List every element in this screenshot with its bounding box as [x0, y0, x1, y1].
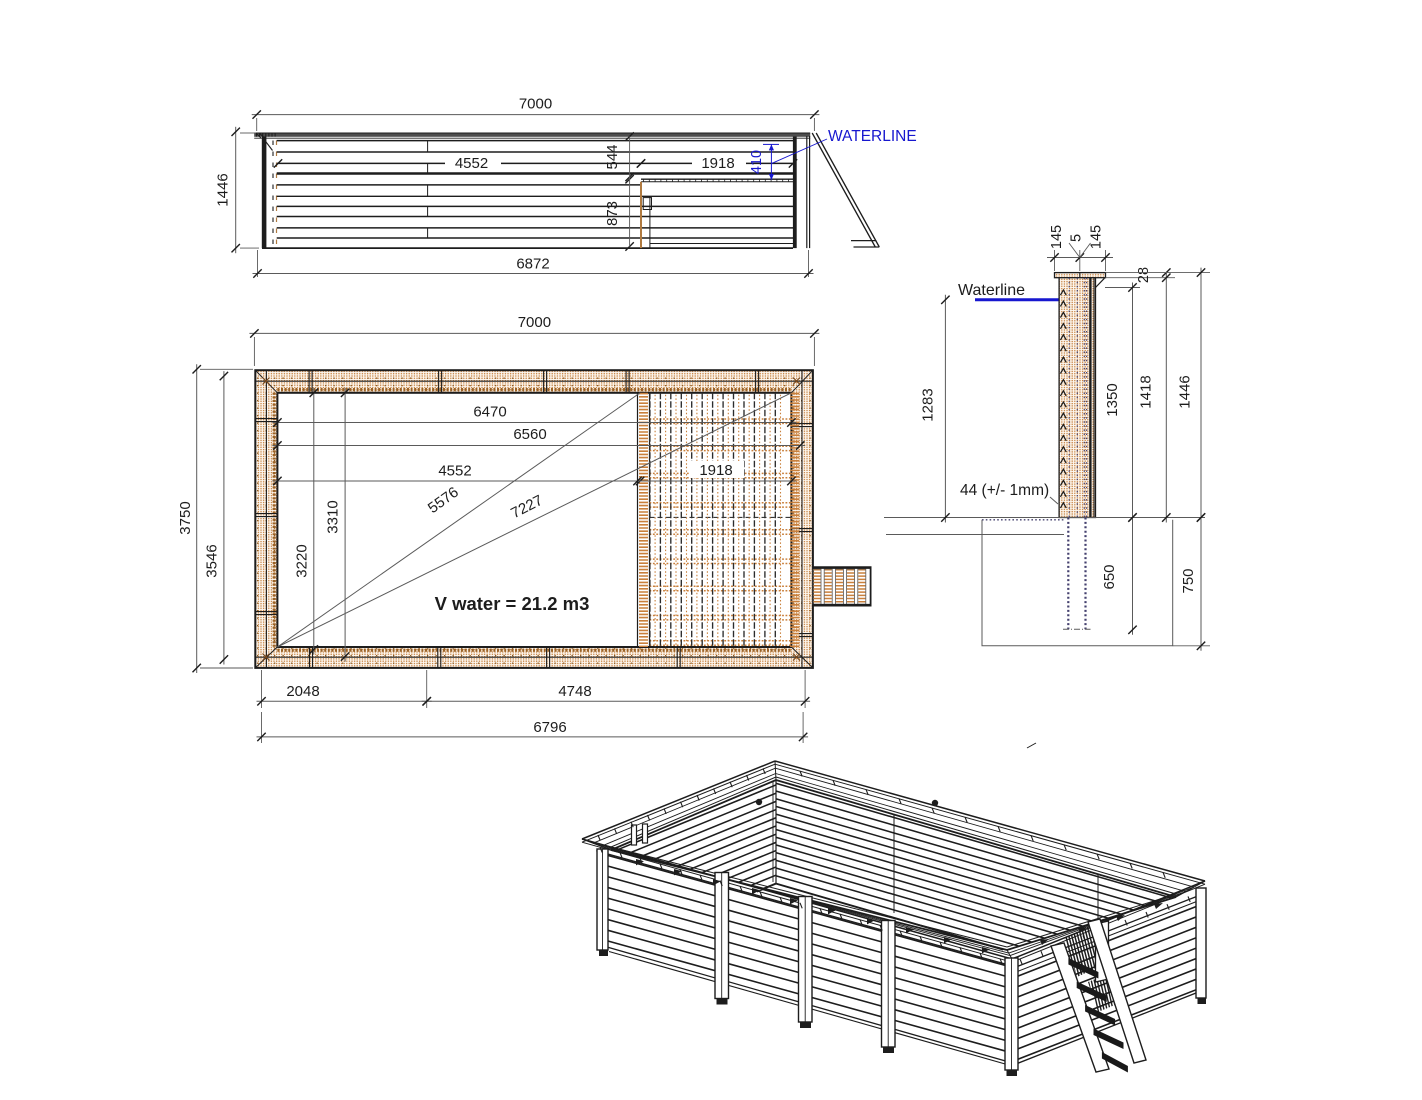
- svg-text:6560: 6560: [513, 426, 546, 443]
- svg-text:Waterline: Waterline: [958, 282, 1025, 299]
- svg-text:1918: 1918: [701, 155, 734, 172]
- svg-text:V water = 21.2 m3: V water = 21.2 m3: [435, 593, 590, 614]
- svg-text:6872: 6872: [516, 256, 549, 273]
- svg-text:28: 28: [1136, 267, 1152, 283]
- svg-text:6796: 6796: [533, 719, 566, 736]
- svg-text:5: 5: [1068, 234, 1084, 242]
- svg-text:1350: 1350: [1104, 383, 1121, 416]
- svg-text:4748: 4748: [558, 683, 591, 700]
- svg-text:145: 145: [1089, 225, 1105, 249]
- svg-text:3310: 3310: [325, 500, 342, 533]
- svg-text:1446: 1446: [1177, 375, 1194, 408]
- svg-text:4552: 4552: [455, 155, 488, 172]
- svg-text:3220: 3220: [294, 544, 311, 577]
- svg-text:2048: 2048: [286, 683, 319, 700]
- svg-text:7000: 7000: [518, 314, 551, 331]
- svg-text:544: 544: [604, 144, 621, 169]
- svg-text:1418: 1418: [1138, 375, 1155, 408]
- svg-text:1918: 1918: [699, 462, 732, 479]
- svg-text:1446: 1446: [215, 173, 232, 206]
- svg-text:4552: 4552: [438, 463, 471, 480]
- svg-text:873: 873: [604, 201, 621, 226]
- svg-text:3546: 3546: [204, 544, 221, 577]
- svg-text:145: 145: [1049, 225, 1065, 249]
- svg-text:750: 750: [1180, 568, 1197, 593]
- svg-text:3750: 3750: [177, 501, 194, 534]
- svg-text:44 (+/- 1mm): 44 (+/- 1mm): [960, 482, 1049, 499]
- svg-text:1283: 1283: [920, 388, 937, 421]
- svg-text:7000: 7000: [519, 96, 552, 113]
- svg-text:650: 650: [1101, 564, 1118, 589]
- svg-text:6470: 6470: [473, 404, 506, 421]
- svg-text:410: 410: [749, 150, 765, 174]
- svg-text:WATERLINE: WATERLINE: [828, 128, 917, 145]
